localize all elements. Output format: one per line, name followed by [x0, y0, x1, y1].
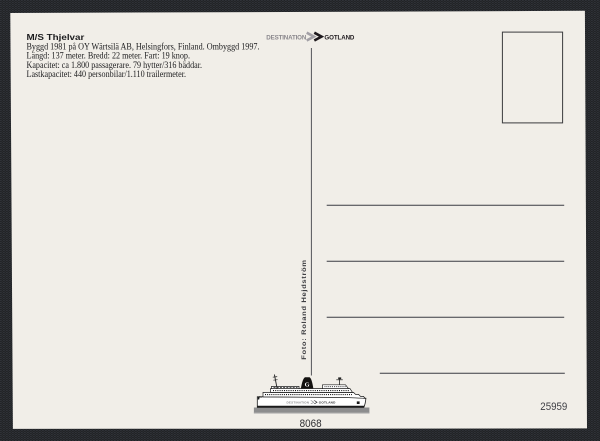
svg-text:GOTLAND: GOTLAND: [324, 34, 355, 41]
svg-text:25959: 25959: [540, 401, 567, 413]
svg-text:Lastkapacitet: 440 personbilar: Lastkapacitet: 440 personbilar/1.110 tra…: [27, 69, 187, 79]
svg-text:DESTINATION: DESTINATION: [266, 34, 307, 41]
svg-text:8068: 8068: [300, 418, 322, 430]
svg-text:GOTLAND: GOTLAND: [319, 401, 336, 405]
svg-text:DESTINATION: DESTINATION: [287, 401, 310, 405]
svg-text:G: G: [305, 382, 310, 389]
svg-text:Foto: Roland Hejdström: Foto: Roland Hejdström: [301, 259, 308, 360]
svg-text:M/S Thjelvar: M/S Thjelvar: [27, 32, 86, 42]
